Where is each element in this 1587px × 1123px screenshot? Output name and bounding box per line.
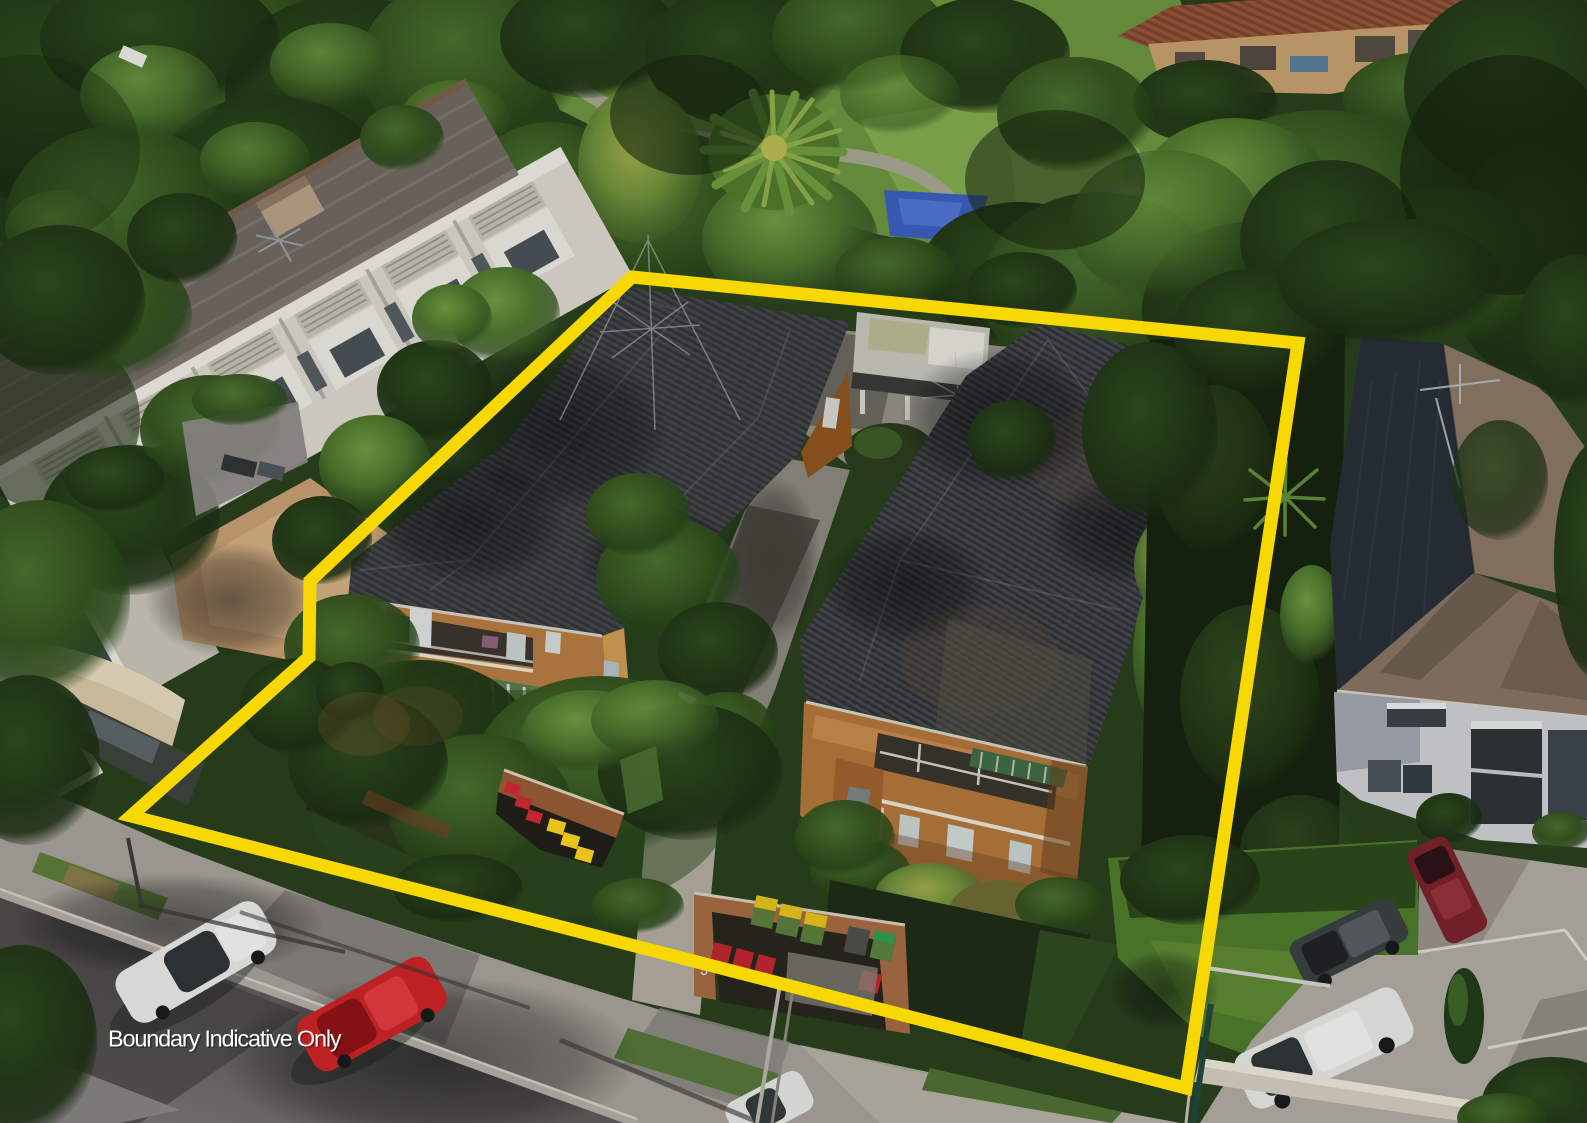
svg-text:Boundary Indicative Only: Boundary Indicative Only <box>108 1026 342 1052</box>
